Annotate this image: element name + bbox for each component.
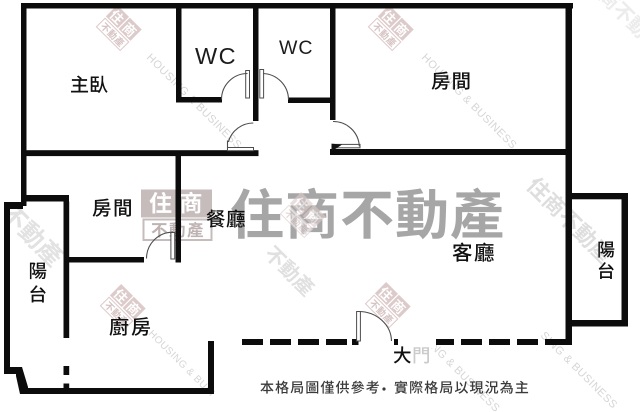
svg-text:WC: WC: [195, 43, 237, 69]
svg-text:WC: WC: [279, 37, 314, 59]
